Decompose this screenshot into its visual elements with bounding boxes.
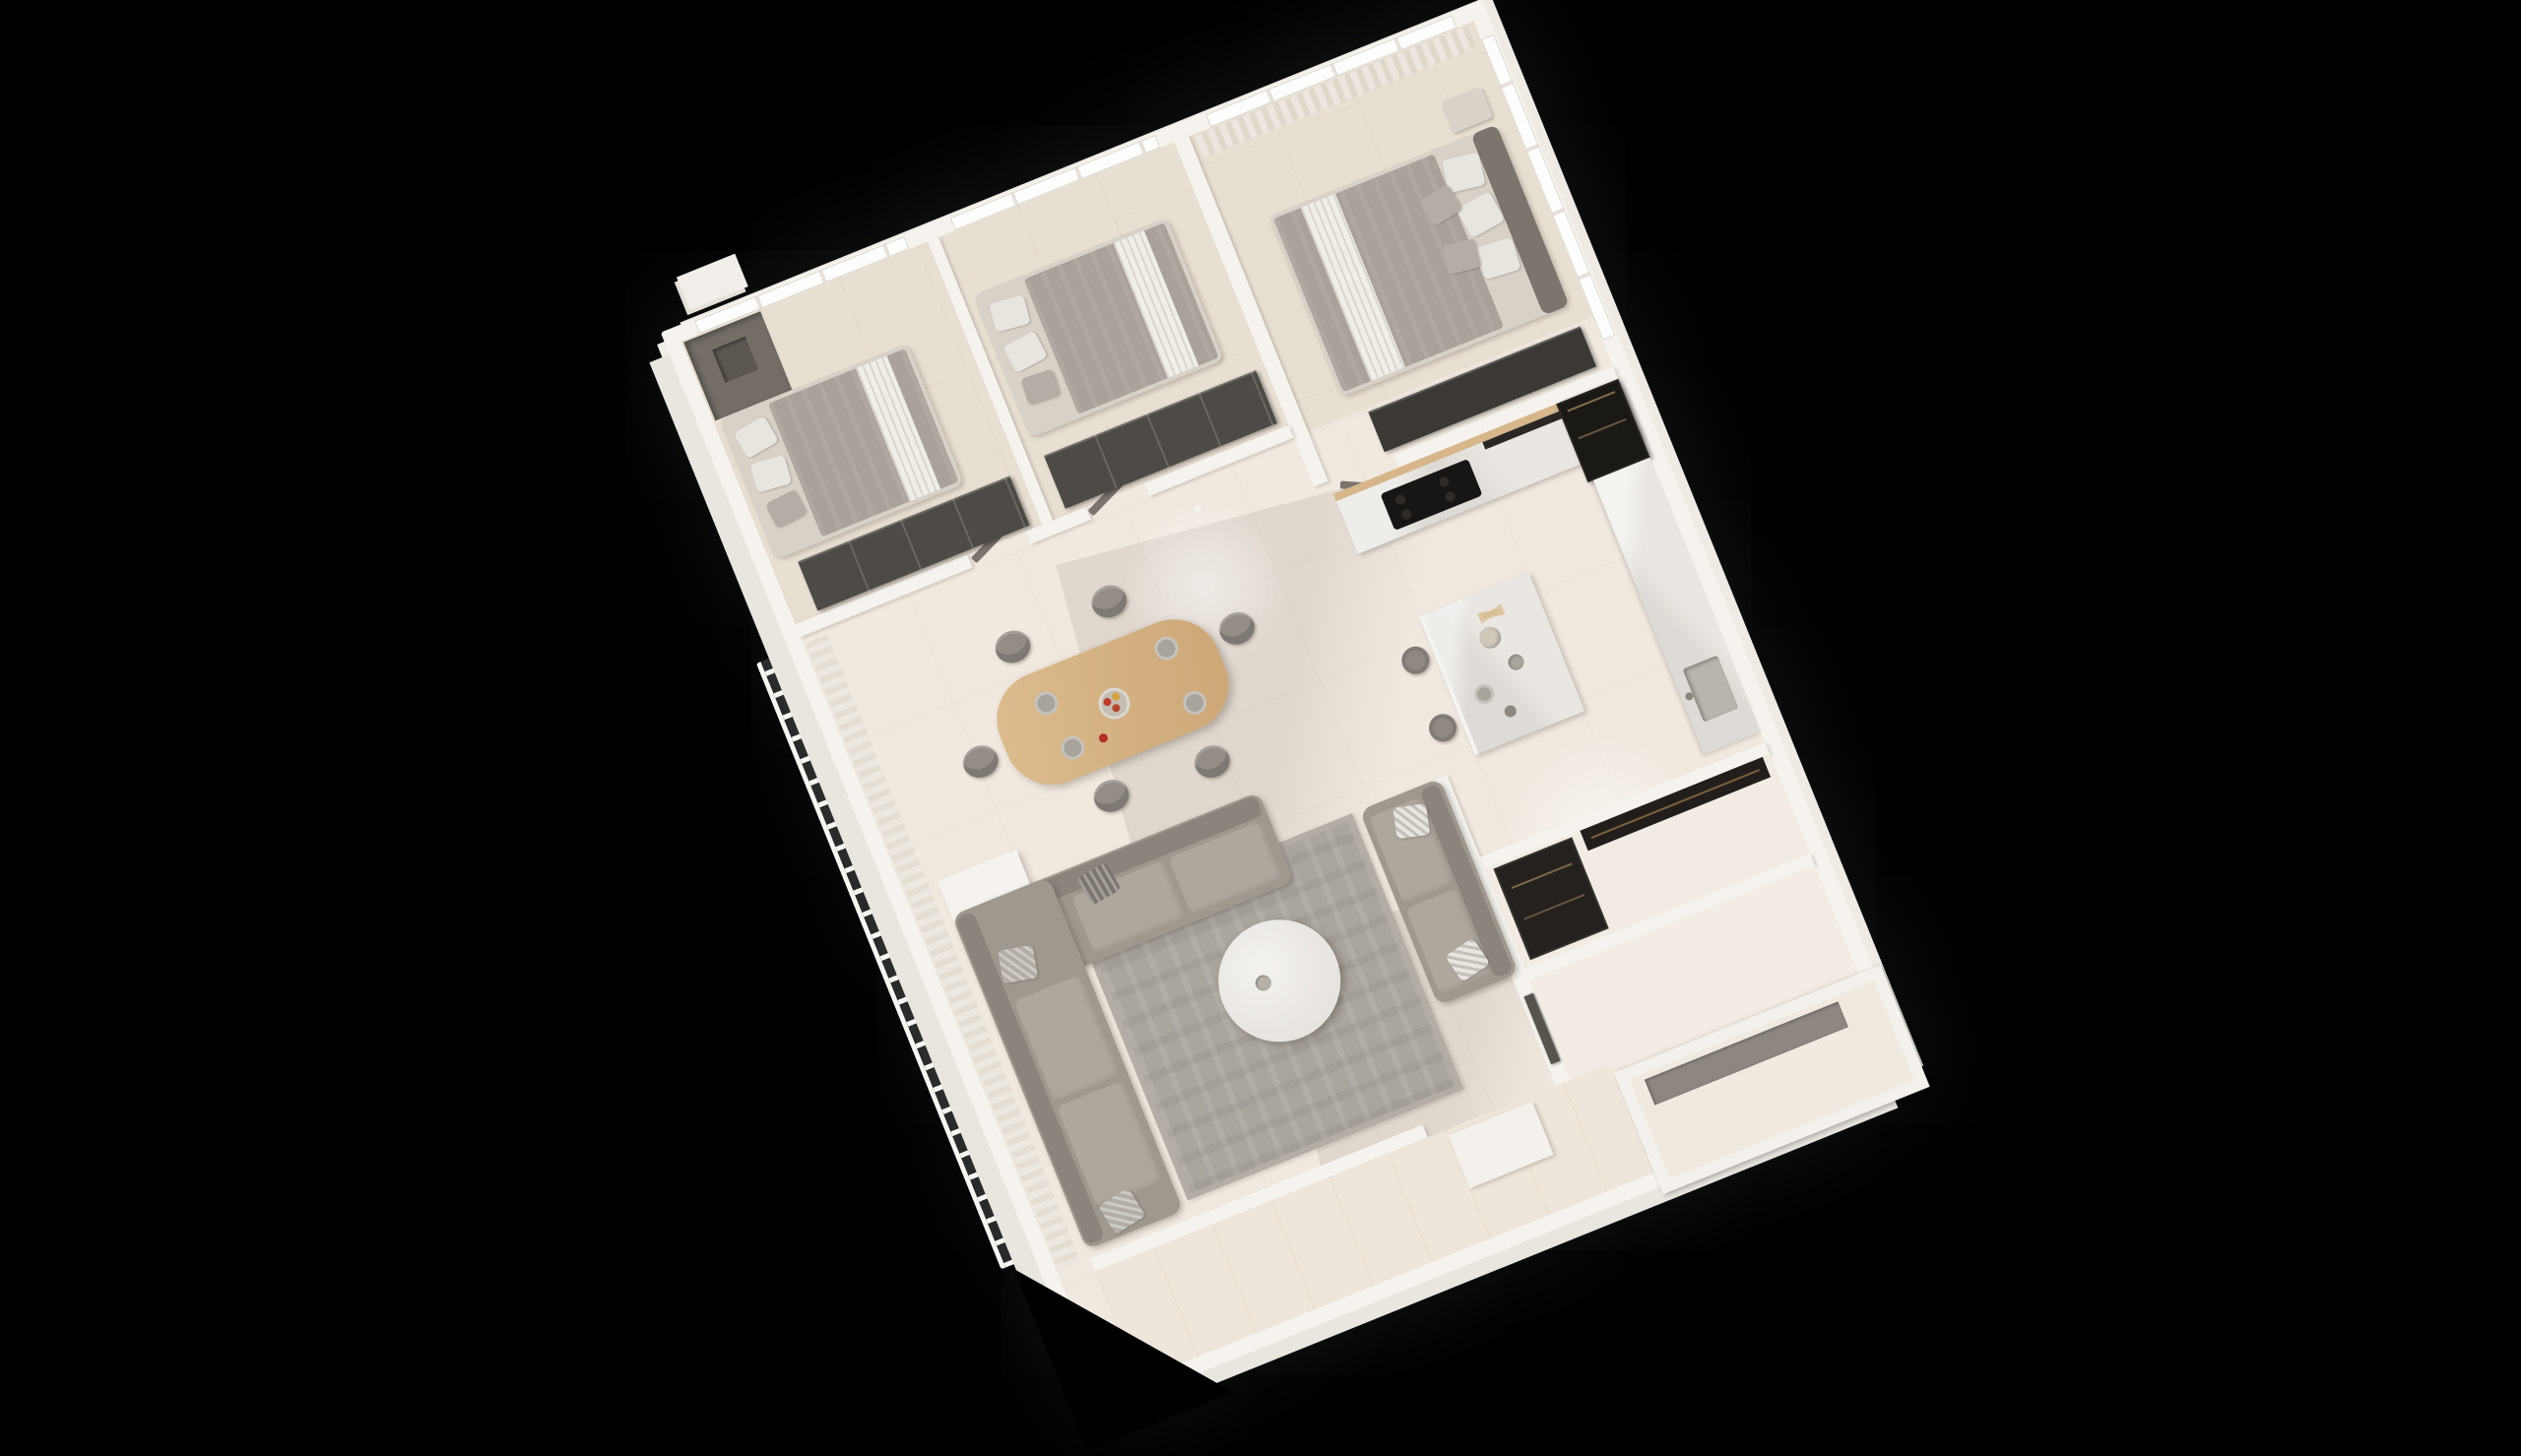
building-interior — [681, 21, 1900, 1393]
sectional-pillow-corner — [998, 945, 1038, 984]
kitchen-sink — [1683, 656, 1739, 723]
bedroom-2-pillow-accent — [1020, 369, 1061, 406]
closet-gold-trim-1 — [1512, 862, 1573, 889]
coffee-table-decor — [1254, 973, 1274, 993]
bedroom-2-pillow-b — [1002, 331, 1048, 373]
fruit-yellow — [1111, 691, 1121, 701]
pampas-grass — [1473, 594, 1510, 634]
tall-unit-wood-trim-2 — [1579, 418, 1627, 439]
fruit-red-2 — [1111, 703, 1121, 713]
burner-3 — [1438, 475, 1451, 488]
table-flower — [1098, 732, 1110, 744]
bedroom-1-pillow-accent — [765, 489, 808, 529]
island-bowl — [1506, 652, 1526, 672]
plate-2 — [1151, 633, 1182, 664]
fruit-bowl — [1094, 683, 1135, 725]
plate-4 — [1180, 687, 1210, 718]
bedroom-1-pillow-a — [734, 415, 779, 459]
plate-1 — [1031, 688, 1062, 719]
island-plate — [1471, 681, 1497, 707]
burner-4 — [1444, 490, 1456, 503]
building-shell — [661, 1, 1919, 1415]
bedroom-1-pillow-b — [749, 455, 792, 493]
apartment-plan — [661, 1, 1919, 1415]
closet-shelf-box — [712, 337, 758, 383]
loveseat-pillow-a — [1392, 803, 1430, 839]
plate-3 — [1058, 732, 1088, 763]
burner-2 — [1400, 508, 1413, 521]
bedroom-2-pillow-a — [989, 294, 1031, 332]
fruit-red — [1102, 697, 1112, 707]
closet-gold-trim-2 — [1524, 894, 1585, 920]
render-canvas — [0, 0, 2521, 1418]
burner-1 — [1394, 493, 1407, 506]
island-cup — [1503, 704, 1519, 720]
